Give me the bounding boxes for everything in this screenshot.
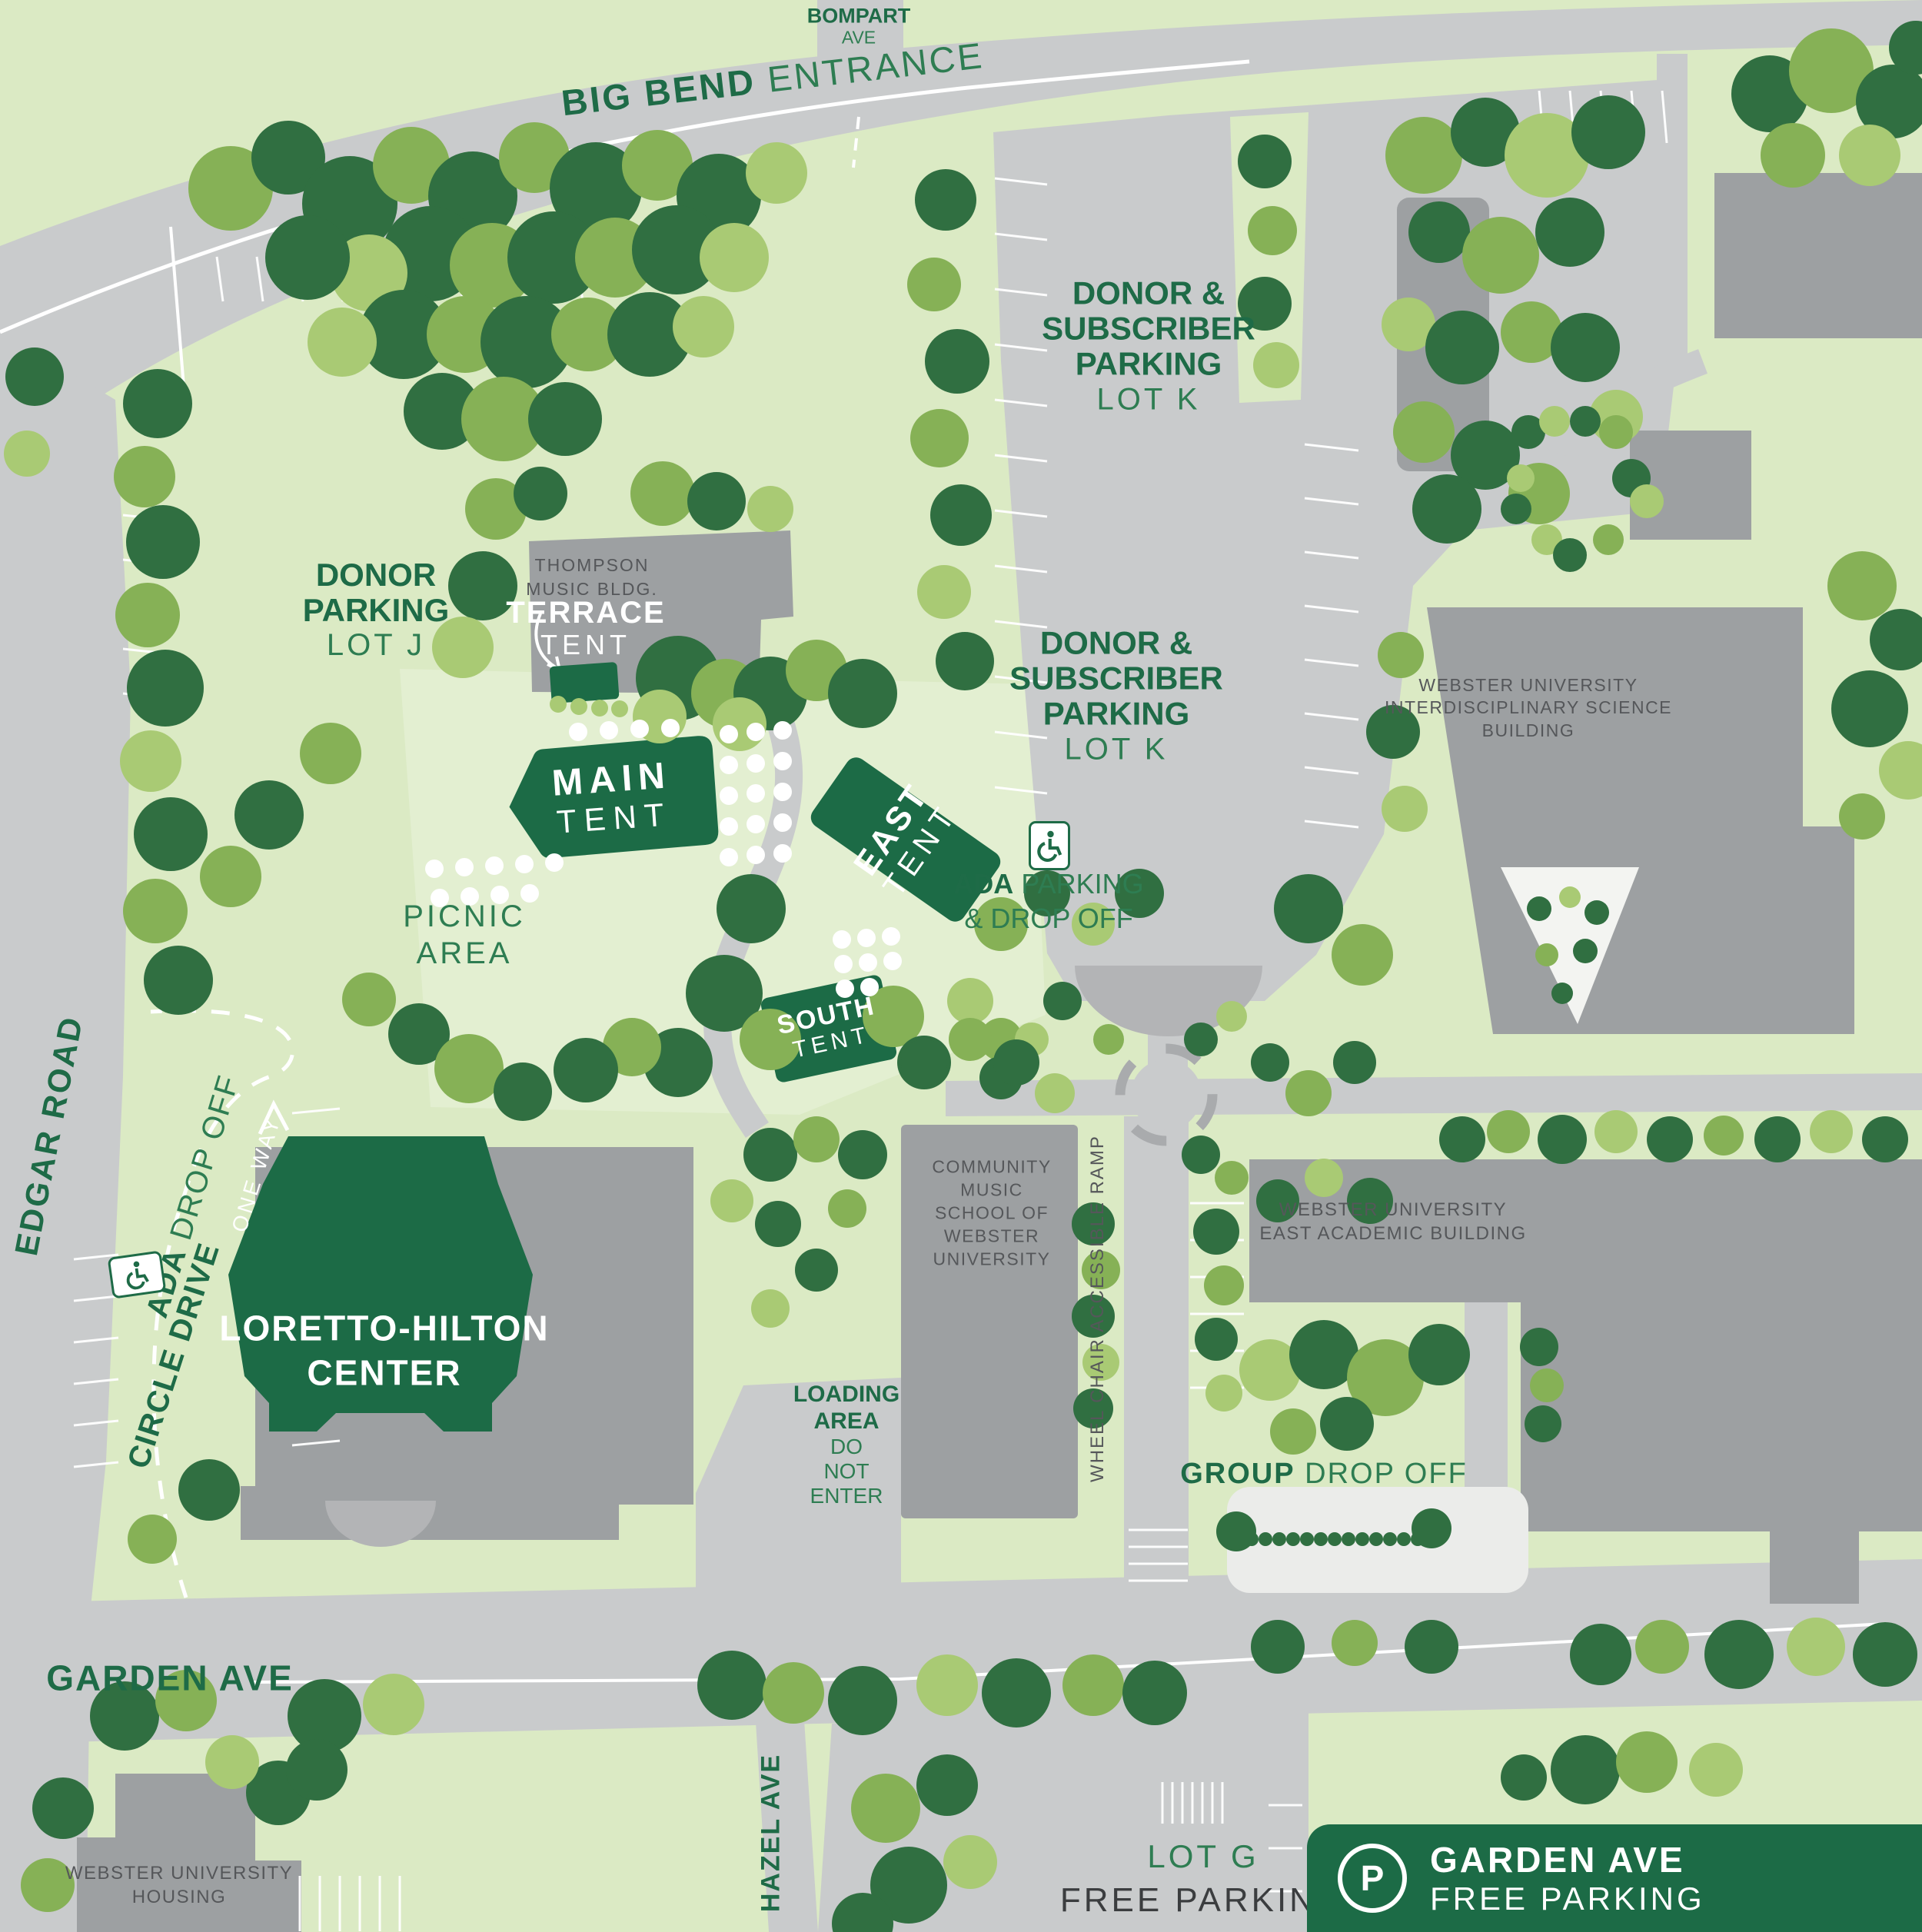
loading-area-label: LOADINGAREA DO NOT ENTER — [793, 1382, 899, 1509]
parking-p-icon: P — [1338, 1844, 1407, 1913]
community-music-school-label: COMMUNITYMUSIC SCHOOL OFWEBSTER UNIVERSI… — [932, 1156, 1051, 1270]
lot-g-label: LOT G FREE PARKING — [1060, 1836, 1346, 1922]
science-building-label: WEBSTER UNIVERSITYINTERDISCIPLINARY SCIE… — [1385, 674, 1672, 742]
picnic-area-label: PICNICAREA — [403, 898, 526, 972]
map-graphics — [0, 0, 1922, 1932]
thompson-label: THOMPSONMUSIC BLDG. — [526, 554, 658, 601]
lot-k-upper-label: DONOR &SUBSCRIBER PARKINGLOT K — [1042, 276, 1255, 417]
housing-label: WEBSTER UNIVERSITYHOUSING — [65, 1861, 293, 1909]
ada-parking-label: ADA PARKING & DROP OFF — [953, 866, 1143, 936]
campus-map: BOMPARTAVE BIG BEND ENTRANCE DONOR &SUBS… — [0, 0, 1922, 1932]
wheelchair-ramp-label: WHEEL CHAIR ACCESSIBLE RAMP — [1088, 1135, 1108, 1482]
lot-k-lower-label: DONOR &SUBSCRIBER PARKINGLOT K — [1009, 626, 1223, 766]
wheelchair-icon — [108, 1250, 167, 1299]
street-label-garden: GARDEN AVE — [46, 1659, 294, 1698]
street-label-bompart: BOMPARTAVE — [807, 5, 911, 48]
main-tent-label: MAIN TENT — [550, 756, 674, 840]
lot-j-label: DONORPARKING LOT J — [303, 557, 450, 662]
street-label-hazel: HAZEL AVE — [756, 1754, 785, 1912]
east-academic-label: WEBSTER UNIVERSITYEAST ACADEMIC BUILDING — [1259, 1198, 1526, 1245]
group-drop-off-label: GROUP DROP OFF — [1180, 1458, 1468, 1491]
loretto-hilton-label: LORETTO-HILTONCENTER — [219, 1307, 549, 1395]
terrace-tent-label: TERRACE TENT — [506, 596, 665, 660]
garden-ave-free-parking-badge: P GARDEN AVEFREE PARKING — [1307, 1824, 1922, 1932]
wheelchair-icon — [1029, 821, 1070, 870]
